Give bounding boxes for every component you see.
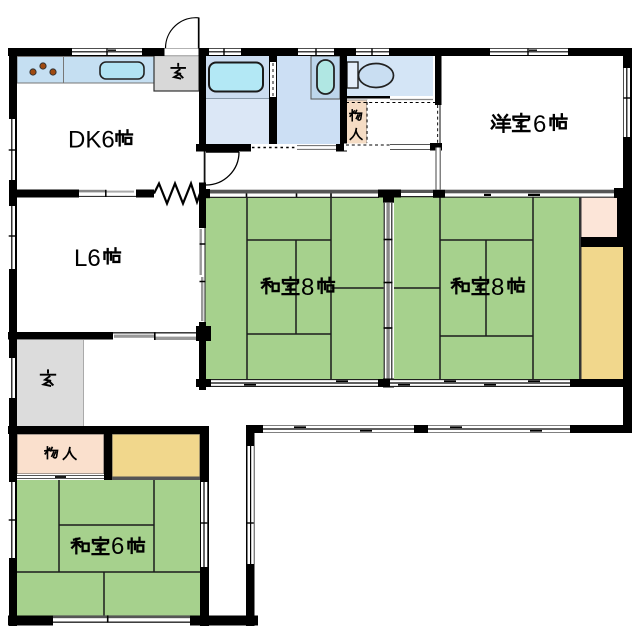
svg-text:L6: L6 [74,245,101,272]
svg-text:6: 6 [533,111,546,138]
svg-text:DK6: DK6 [68,127,115,154]
svg-text:8: 8 [301,274,314,301]
svg-text:8: 8 [491,274,504,301]
svg-text:6: 6 [111,533,124,560]
